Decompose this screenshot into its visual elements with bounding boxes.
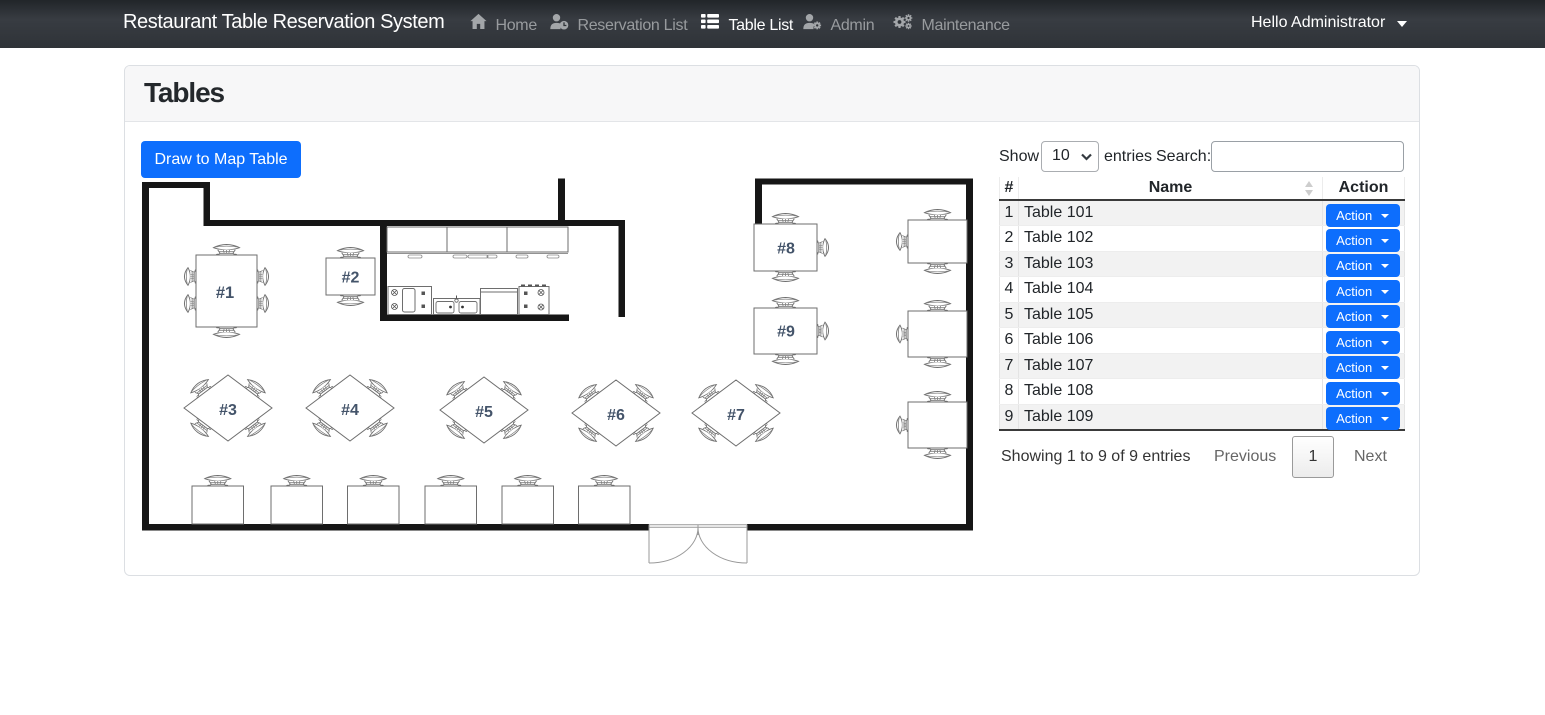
svg-text:#3: #3 xyxy=(219,402,237,419)
svg-text:#9: #9 xyxy=(777,324,795,341)
svg-text:#4: #4 xyxy=(341,402,359,419)
svg-text:#7: #7 xyxy=(727,407,745,424)
svg-text:#8: #8 xyxy=(777,241,795,258)
svg-text:#6: #6 xyxy=(607,407,625,424)
svg-text:#5: #5 xyxy=(475,404,493,421)
svg-text:#2: #2 xyxy=(342,270,360,287)
svg-text:#1: #1 xyxy=(216,284,234,302)
